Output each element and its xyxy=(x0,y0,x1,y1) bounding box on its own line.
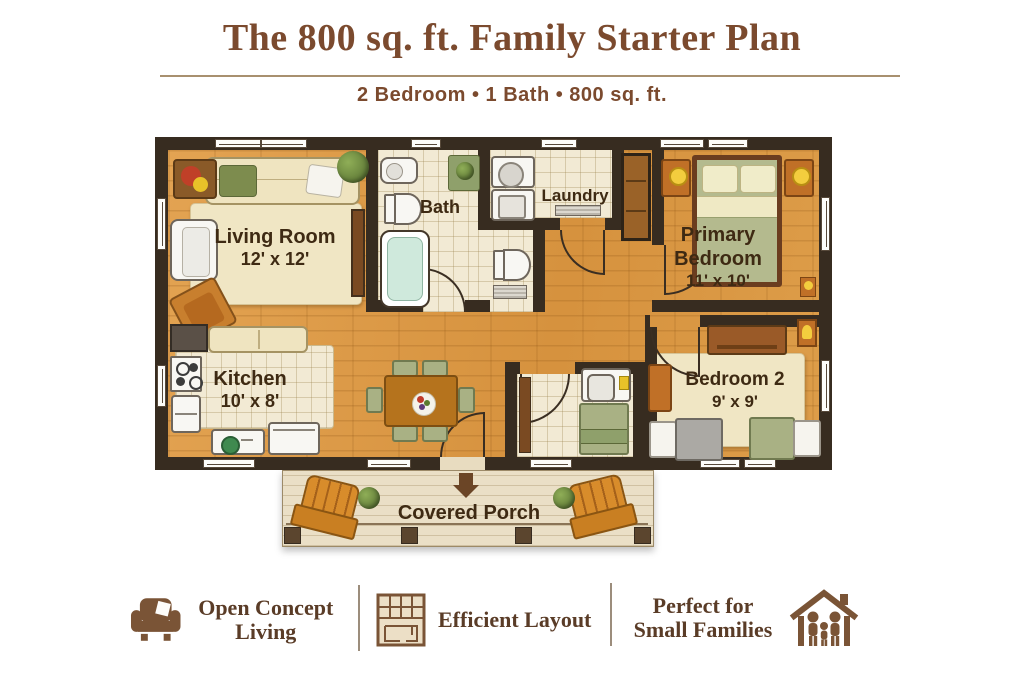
dining-chair xyxy=(366,387,383,413)
wall xyxy=(505,362,520,374)
feature-label: Efficient Layout xyxy=(438,608,591,632)
vanity-sink xyxy=(581,368,631,402)
sofa-pillow-green xyxy=(219,165,257,197)
armchair-icon xyxy=(130,596,181,644)
dryer xyxy=(491,189,535,221)
floorplan-icon xyxy=(376,593,426,647)
dishwasher xyxy=(268,422,320,455)
primary-bedroom-label: Primary Bedroom 11' x 10' xyxy=(658,223,778,291)
dresser xyxy=(707,325,787,355)
toilet xyxy=(493,249,527,277)
bath-shelf-plant xyxy=(448,155,480,191)
window-mullion xyxy=(260,139,262,148)
bed-fold xyxy=(697,196,777,218)
dining-table xyxy=(384,375,458,427)
wall xyxy=(465,300,490,312)
wall xyxy=(645,315,650,327)
porch-post xyxy=(401,527,418,544)
wc-shelf xyxy=(493,285,527,299)
corner-lamp-table xyxy=(797,319,817,347)
kitchen-label: Kitchen 10' x 8' xyxy=(190,367,310,413)
plant xyxy=(337,151,369,183)
porch-post xyxy=(284,527,301,544)
wall xyxy=(366,150,378,312)
page-title: The 800 sq. ft. Family Starter Plan xyxy=(0,16,1024,60)
window xyxy=(708,139,748,148)
window xyxy=(367,459,411,468)
window xyxy=(203,459,255,468)
nightstand xyxy=(661,159,691,197)
entry-arrow-head xyxy=(453,485,479,498)
window xyxy=(157,198,166,250)
feature-divider xyxy=(610,583,612,646)
window xyxy=(744,459,776,468)
bench-seat xyxy=(208,326,308,353)
kitchen-dims: 10' x 8' xyxy=(190,391,310,413)
small-bed xyxy=(579,403,629,455)
entry-arrow-icon xyxy=(459,473,473,485)
laundry-shelf xyxy=(555,205,601,216)
window xyxy=(821,197,830,251)
window xyxy=(157,365,166,407)
laundry-label: Laundry xyxy=(533,186,617,206)
living-room-dims: 12' x 12' xyxy=(195,249,355,271)
feature-small-families: Perfect for Small Families xyxy=(628,585,888,651)
window xyxy=(530,459,572,468)
entry-door-leaf xyxy=(483,412,485,457)
bathtub xyxy=(380,230,430,308)
porch-post xyxy=(634,527,651,544)
page-subtitle: 2 Bedroom • 1 Bath • 800 sq. ft. xyxy=(0,84,1024,107)
entry-threshold xyxy=(440,457,485,470)
floor-plan: Covered Porch xyxy=(155,137,832,545)
wall xyxy=(633,362,645,457)
corner-lamp-table xyxy=(800,277,816,297)
feature-open-concept: Open Concept Living xyxy=(130,588,340,652)
twin-bed xyxy=(749,417,817,457)
feature-label: Open Concept Living xyxy=(191,596,340,644)
window xyxy=(411,139,441,148)
wall xyxy=(505,374,517,457)
features-row: Open Concept Living Efficient Layout Per… xyxy=(0,580,1024,660)
wall xyxy=(533,230,545,312)
window xyxy=(541,139,577,148)
feature-efficient-layout: Efficient Layout xyxy=(376,588,596,652)
twin-bed xyxy=(649,418,719,458)
wall xyxy=(652,300,819,312)
title-divider xyxy=(160,75,900,77)
kitchen-sink-counter xyxy=(211,429,265,455)
bed-pillow xyxy=(702,165,738,193)
house-family-icon xyxy=(788,588,860,648)
bathroom-sink xyxy=(380,157,418,184)
wall-board xyxy=(519,377,531,453)
feature-label: Perfect for Small Families xyxy=(628,594,778,642)
page: The 800 sq. ft. Family Starter Plan 2 Be… xyxy=(0,0,1024,683)
bedroom2-label: Bedroom 2 9' x 9' xyxy=(660,369,810,412)
bath-label: Bath xyxy=(410,197,470,219)
primary-bedroom-dims: 11' x 10' xyxy=(658,271,778,291)
laundry-door-leaf xyxy=(603,230,605,275)
bedroom2-dims: 9' x 9' xyxy=(660,392,810,412)
washer xyxy=(491,156,535,188)
closet xyxy=(621,153,651,241)
wall xyxy=(605,218,612,230)
bed-pillow xyxy=(740,165,776,193)
tray-table xyxy=(173,159,217,199)
feature-divider xyxy=(358,585,360,651)
living-room-label: Living Room 12' x 12' xyxy=(195,225,355,271)
nightstand xyxy=(784,159,814,197)
divider-cabinet xyxy=(170,324,208,352)
window xyxy=(821,360,830,412)
dining-chair xyxy=(458,387,475,413)
dining-chair xyxy=(422,425,448,442)
porch-post xyxy=(515,527,532,544)
dining-chair xyxy=(392,425,418,442)
window xyxy=(660,139,704,148)
porch-label: Covered Porch xyxy=(369,501,569,525)
